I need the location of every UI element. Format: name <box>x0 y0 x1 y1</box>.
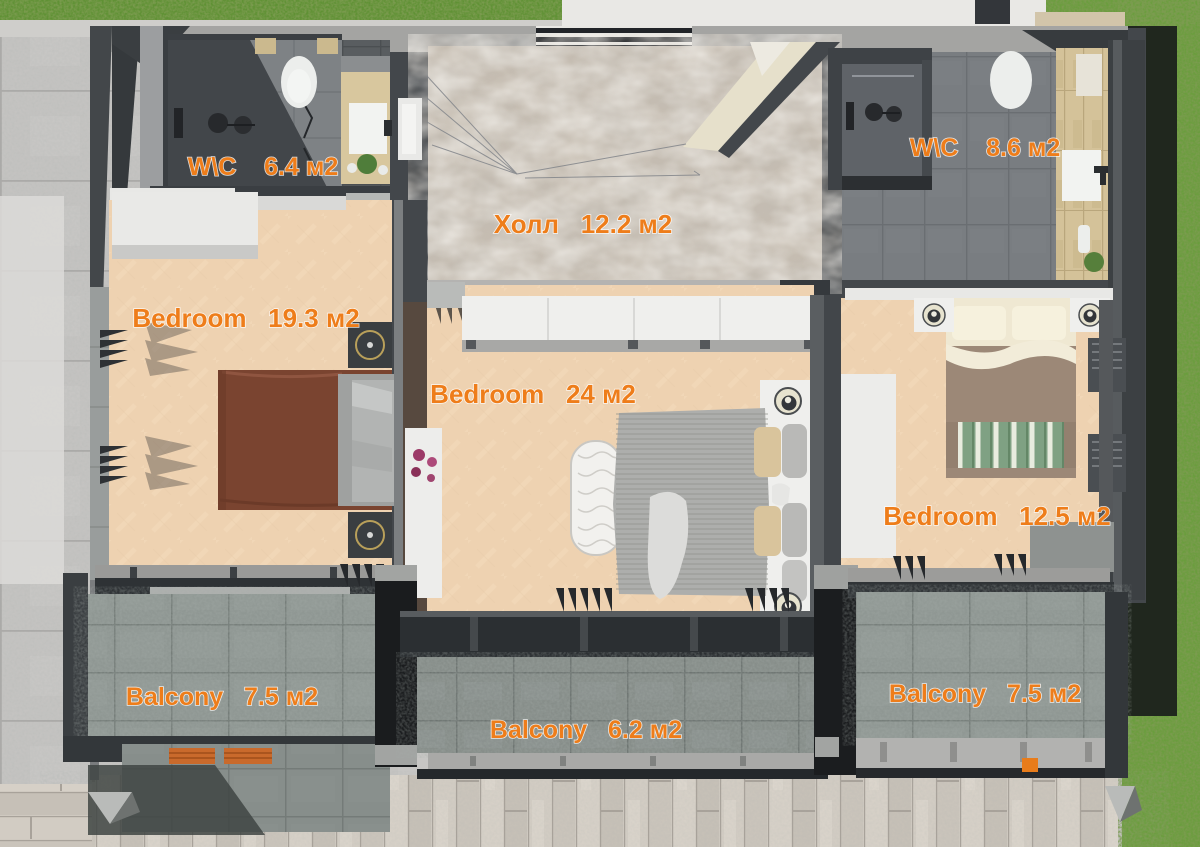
svg-text:Холл 12.2 м2: Холл 12.2 м2 <box>494 209 672 239</box>
svg-text:Balcony 6.2 м2: Balcony 6.2 м2 <box>490 716 682 744</box>
svg-text:Bedroom 24 м2: Bedroom 24 м2 <box>430 379 636 409</box>
svg-text:W\C 6.4 м2: W\C 6.4 м2 <box>188 153 338 181</box>
svg-text:Bedroom 12.5 м2: Bedroom 12.5 м2 <box>883 501 1110 531</box>
svg-text:Bedroom 19.3 м2: Bedroom 19.3 м2 <box>132 303 359 333</box>
svg-text:W\C 8.6 м2: W\C 8.6 м2 <box>910 134 1060 162</box>
svg-text:Balcony 7.5 м2: Balcony 7.5 м2 <box>126 683 318 711</box>
svg-text:Balcony 7.5 м2: Balcony 7.5 м2 <box>889 680 1081 708</box>
